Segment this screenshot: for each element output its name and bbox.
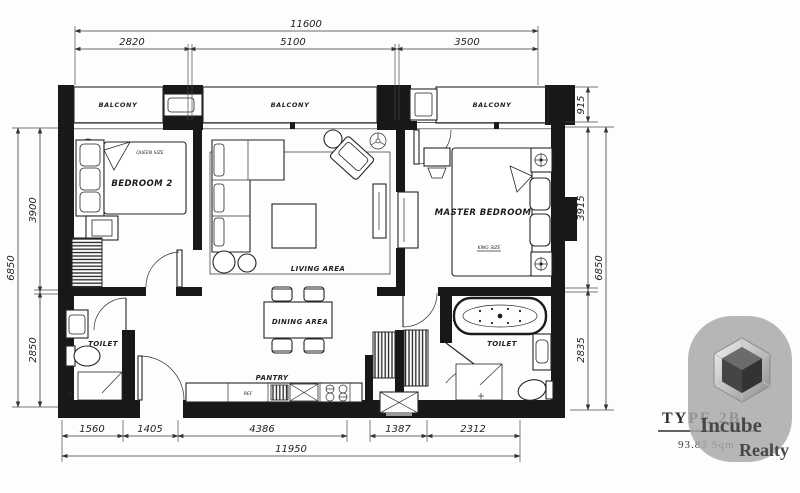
living-area: LIVING AREA xyxy=(210,130,390,274)
queen-size-label: QUEEN SIZE xyxy=(136,150,164,156)
toilet-common-door xyxy=(94,298,126,330)
nightstand-top xyxy=(531,148,552,172)
balconies: BALCONY BALCONY BALCONY xyxy=(74,87,548,123)
pillow-2 xyxy=(530,214,550,246)
closet-hatched-2 xyxy=(404,330,428,386)
king-size-label: KING SIZE xyxy=(478,245,501,251)
master-bedroom: MASTER BEDROOM KING SIZE xyxy=(398,130,552,276)
pantry-kitchen: PANTRY REF xyxy=(186,374,362,406)
fridge-label: REF xyxy=(244,391,253,397)
closet-hatched-1 xyxy=(373,332,395,378)
coffee-table xyxy=(272,204,316,248)
tv-console xyxy=(373,184,386,238)
ceiling-fan2-icon xyxy=(370,133,386,149)
dish-rack xyxy=(271,385,288,400)
ac-unit-left xyxy=(164,94,202,116)
washer-unit xyxy=(380,392,418,414)
dining-area: DINING AREA xyxy=(264,287,332,353)
dim-top-right: 3500 xyxy=(454,37,479,48)
dim-bottom-3: 4386 xyxy=(249,424,274,435)
watermark: Incube Realty xyxy=(688,316,792,462)
balcony-center-label: BALCONY xyxy=(271,101,310,109)
pillow-1 xyxy=(530,178,550,210)
wall-master-west-upper xyxy=(396,122,405,192)
master-wardrobe xyxy=(398,192,418,248)
dim-left-lower: 2850 xyxy=(28,337,39,362)
entrance-door xyxy=(138,356,184,400)
wall-master-toilet-north xyxy=(438,287,565,296)
wc-master xyxy=(516,377,553,403)
floorplan-page: BALCONY BALCONY BALCONY QUEEN SIZE BEDRO… xyxy=(0,0,800,493)
wall-master-toilet-west xyxy=(440,293,452,343)
queen-bed xyxy=(76,140,186,216)
dim-bottom-2: 1405 xyxy=(137,424,162,435)
wall-right-column xyxy=(551,197,577,241)
wardrobe-bedroom2 xyxy=(72,238,102,287)
wall-closet-divider xyxy=(395,330,404,400)
wall-top-right-block xyxy=(545,85,575,125)
dim-bottom-5: 2312 xyxy=(460,424,485,435)
balcony-right-label: BALCONY xyxy=(473,101,512,109)
dim-top-mid: 5100 xyxy=(280,37,305,48)
nightstand-bottom xyxy=(531,252,552,276)
wall-right xyxy=(551,122,565,418)
wall-bedroom2-south-left xyxy=(58,287,146,296)
watermark-brand-name: Incube xyxy=(700,413,762,437)
master-desk xyxy=(424,148,450,178)
dim-left-total: 6850 xyxy=(6,255,17,280)
vanity-sink xyxy=(533,334,551,370)
floorplan-drawing: BALCONY BALCONY BALCONY QUEEN SIZE BEDRO… xyxy=(0,0,800,493)
master-bedroom-label: MASTER BEDROOM xyxy=(435,208,532,218)
corridor-closets xyxy=(373,293,437,414)
bathtub xyxy=(454,298,546,334)
wall-bottom-left xyxy=(58,400,140,418)
toilet-common-label: TOILET xyxy=(88,340,119,348)
watermark-brand-suffix: Realty xyxy=(739,440,789,460)
dim-right-balcony: 915 xyxy=(576,95,587,114)
ottoman-small xyxy=(238,254,256,272)
toilet-master-label: TOILET xyxy=(487,340,518,348)
wc-toilet xyxy=(66,346,100,366)
ac-shaft-right xyxy=(410,89,437,120)
bedroom2-label: BEDROOM 2 xyxy=(111,179,172,189)
master-suite-door xyxy=(403,293,437,327)
wall-balcony-divider-2 xyxy=(377,85,411,125)
dim-right-upper: 3915 xyxy=(576,195,587,220)
bedroom2-door xyxy=(146,250,182,287)
living-label: LIVING AREA xyxy=(291,265,346,273)
sink-basin xyxy=(66,310,88,338)
toilet-master: TOILET xyxy=(446,298,553,403)
wall-pantry-end xyxy=(365,355,373,400)
dining-label: DINING AREA xyxy=(272,318,328,326)
bedside-table xyxy=(86,216,118,240)
dim-right-lower: 2835 xyxy=(576,337,587,362)
wall-toilet-right xyxy=(122,330,135,400)
bedroom2: QUEEN SIZE BEDROOM 2 xyxy=(72,139,186,287)
shower-master xyxy=(456,364,502,400)
wall-bedroom2-south-right xyxy=(176,287,202,296)
toilet-common: TOILET xyxy=(66,298,126,400)
dim-right-total: 6850 xyxy=(594,255,605,280)
dim-bottom-4: 1387 xyxy=(385,424,411,435)
wall-master-west-lower xyxy=(396,248,405,293)
shower-common xyxy=(68,372,122,400)
dim-top-total: 11600 xyxy=(290,19,322,30)
dim-left-upper: 3900 xyxy=(28,197,39,222)
dim-bottom-1: 1560 xyxy=(79,424,104,435)
dim-top-left: 2820 xyxy=(119,37,144,48)
balcony-left-label: BALCONY xyxy=(99,101,138,109)
wall-bottom xyxy=(183,400,565,418)
wall-bedroom2-living xyxy=(193,122,202,250)
ottoman-large xyxy=(213,251,235,273)
pantry-label: PANTRY xyxy=(256,374,289,382)
dim-bottom-total: 11950 xyxy=(275,444,307,455)
